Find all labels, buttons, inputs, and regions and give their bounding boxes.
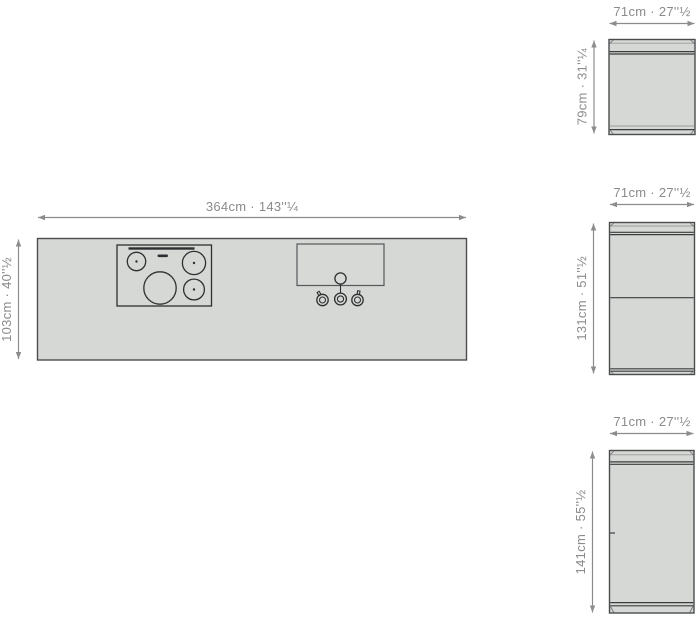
burner-dot [193, 288, 195, 290]
cooktop-vent-strip [129, 247, 195, 249]
elevation-width-label: 71cm · 27''½ [613, 4, 690, 19]
plan-view: 364cm · 143''¼ 103cm · 40''½ [0, 199, 467, 360]
elevation-height-label: 131cm · 51''½ [574, 256, 589, 341]
elevation-width-label: 71cm · 27''½ [613, 414, 690, 429]
plan-depth-label: 103cm · 40''½ [0, 257, 14, 342]
elevation-top: 71cm · 27''½ 79cm · 31''¼ [575, 4, 696, 135]
cooktop-control [158, 255, 169, 258]
elevation-height-label: 79cm · 31''¼ [575, 48, 590, 125]
dimension-drawing: 364cm · 143''¼ 103cm · 40''½ [0, 0, 698, 626]
elevation-middle: 71cm · 27''½ 131cm · 51''½ [574, 185, 695, 375]
plan-width-label: 364cm · 143''¼ [206, 199, 298, 214]
sink-basin [297, 244, 384, 286]
elevation-height-label: 141cm · 55''½ [573, 490, 588, 575]
island-worktop [38, 239, 467, 361]
technical-drawing-canvas: 364cm · 143''¼ 103cm · 40''½ [0, 0, 698, 626]
burner-dot [193, 262, 195, 264]
cabinet-body [610, 451, 695, 614]
burner-dot [135, 260, 137, 262]
elevation-width-label: 71cm · 27''½ [613, 185, 690, 200]
cabinet-body [610, 223, 695, 375]
elevation-bottom: 71cm · 27''½ 141cm · 55''½ [573, 414, 694, 613]
